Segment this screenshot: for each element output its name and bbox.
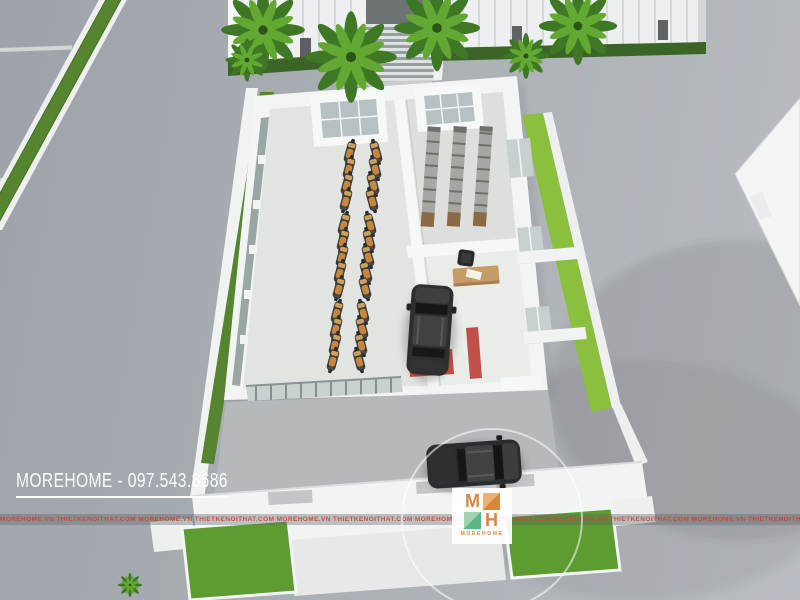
logo-grid: M H bbox=[464, 493, 500, 529]
architectural-render: MOREHOME.VN THIETKENOITHAT.COM MOREHOME.… bbox=[0, 0, 800, 600]
logo-caption: MOREHOME bbox=[461, 531, 504, 537]
watermark-strip-text: MOREHOME.VN THIETKENOITHAT.COM MOREHOME.… bbox=[0, 516, 800, 523]
reception-desk bbox=[452, 265, 499, 286]
logo-square-green bbox=[464, 512, 481, 529]
scene-graphics bbox=[0, 0, 800, 600]
morehome-logo: M H MOREHOME bbox=[452, 488, 512, 544]
rack-shelf-goods bbox=[447, 212, 461, 227]
office-chair bbox=[457, 249, 475, 267]
logo-square-orange bbox=[483, 493, 500, 510]
logo-letter-m: M bbox=[464, 493, 481, 510]
watermark-strip: MOREHOME.VN THIETKENOITHAT.COM MOREHOME.… bbox=[0, 514, 800, 525]
small-plant bbox=[118, 573, 142, 597]
rack-shelf-goods bbox=[421, 212, 435, 227]
glass-portico-right bbox=[414, 84, 484, 132]
brand-watermark-text: MOREHOME - 097.543.8686 bbox=[16, 470, 228, 498]
rack-shelf-goods bbox=[473, 212, 487, 227]
storage-racks bbox=[421, 122, 493, 230]
logo-letter-h: H bbox=[483, 512, 500, 529]
